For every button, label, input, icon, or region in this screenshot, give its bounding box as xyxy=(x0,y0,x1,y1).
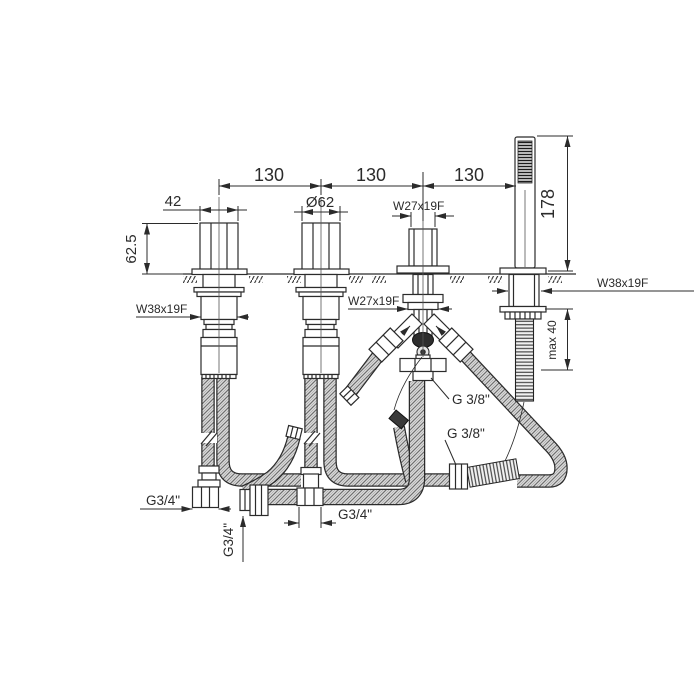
dim-w38-right-label: W38x19F xyxy=(597,276,648,290)
hose-end-fitting-small xyxy=(389,410,408,429)
dim-w27-bottom-label: W27x19F xyxy=(348,294,399,308)
dim-handshower-height: 178 xyxy=(537,136,573,271)
dim-g38-upper-label: G 3/8" xyxy=(452,392,490,407)
bath-mixer-installation-drawing: 130 130 130 42 Ø62 W27x19F xyxy=(0,0,700,700)
dim-handle-height: 62.5 xyxy=(123,224,198,275)
technical-drawing-page: 130 130 130 42 Ø62 W27x19F xyxy=(0,0,700,700)
dim-supply-thread-vertical: G3/4" xyxy=(221,516,243,562)
dim-span3-label: 130 xyxy=(454,165,484,185)
dim-62-5-label: 62.5 xyxy=(123,234,140,263)
dim-tee-thread: G3/4" xyxy=(284,507,372,528)
dim-g34-tee-label: G3/4" xyxy=(338,507,372,522)
dim-span1-label: 130 xyxy=(254,165,284,185)
dim-handle-width: 42 xyxy=(163,193,247,221)
dim-g34-vertical-label: G3/4" xyxy=(221,523,236,557)
deck-hatching xyxy=(183,276,562,283)
shower-hose-corrugated xyxy=(516,319,534,401)
supply-hex-nut-left xyxy=(193,487,219,508)
dim-g38-lower-label: G 3/8" xyxy=(447,426,485,441)
dim-max-deck-thickness: max 40 xyxy=(541,309,573,370)
dim-178-label: 178 xyxy=(538,189,558,219)
dim-outlet-thread-lower: G 3/8" xyxy=(445,426,485,465)
dim-w27-top-label: W27x19F xyxy=(393,199,444,213)
dim-w38-left-label: W38x19F xyxy=(136,302,187,316)
dim-42-label: 42 xyxy=(165,193,182,210)
dim-hole-spacing: 130 130 130 xyxy=(219,165,516,221)
dim-62-label: Ø62 xyxy=(306,194,334,211)
g38-hex-fitting xyxy=(450,464,468,489)
shower-hose-connector-corrugation xyxy=(467,459,520,487)
supply-hex-nut-center xyxy=(250,485,268,516)
handshower-spray-face xyxy=(518,141,532,183)
handle-valve-middle xyxy=(294,223,349,379)
handshower-holder-flange xyxy=(500,268,546,274)
dim-g34-left-label: G3/4" xyxy=(146,493,180,508)
dim-max40-label: max 40 xyxy=(545,320,559,360)
handle-valve-left xyxy=(192,223,247,379)
dim-span2-label: 130 xyxy=(356,165,386,185)
